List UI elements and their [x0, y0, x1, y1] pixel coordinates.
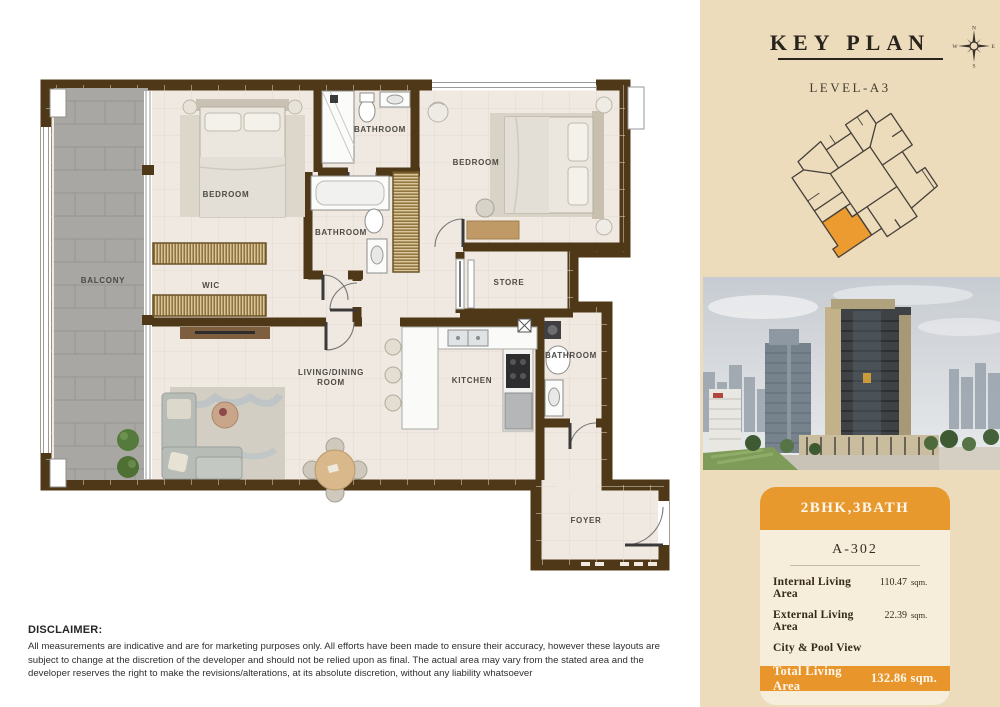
title-underline	[778, 58, 943, 60]
balcony-area	[41, 88, 148, 487]
compass-icon: N E S W	[952, 24, 996, 68]
external-area-row: External Living Area 22.39 sqm.	[760, 609, 950, 633]
room-label-foyer: FOYER	[570, 516, 601, 525]
view-row: City & Pool View	[760, 642, 950, 654]
disclaimer-body: All measurements are indicative and are …	[28, 640, 678, 681]
unit-type-badge: 2BHK,3BATH	[760, 487, 950, 530]
unit-number: A-302	[760, 542, 950, 558]
unit-card: 2BHK,3BATH A-302 Internal Living Area 11…	[760, 487, 950, 705]
total-value: 132.86 sqm.	[871, 671, 937, 686]
store-shelf	[468, 260, 474, 308]
building-photo	[703, 277, 1000, 470]
total-label: Total Living Area	[773, 664, 871, 694]
room-label-bathroom-2: BATHROOM	[315, 228, 367, 237]
page: BALCONYBEDROOMBATHROOMBEDROOMBATHROOMWIC…	[0, 0, 1000, 707]
disclaimer: DISCLAIMER: All measurements are indicat…	[28, 624, 678, 681]
svg-text:N: N	[972, 26, 976, 32]
svg-text:S: S	[972, 64, 975, 69]
key-plan-panel: KEY PLAN LEVEL-A3 N E S W	[700, 0, 1000, 707]
room-label-bathroom-3: BATHROOM	[545, 351, 597, 360]
total-area-bar: Total Living Area 132.86 sqm.	[760, 666, 950, 691]
level-label: LEVEL-A3	[700, 80, 1000, 96]
key-plan-diagram	[778, 100, 953, 268]
svg-text:W: W	[952, 44, 958, 50]
bed-icon	[180, 99, 305, 217]
sofa-icon	[162, 387, 285, 479]
room-label-bedroom-1: BEDROOM	[203, 190, 250, 199]
card-divider	[790, 565, 920, 566]
internal-area-row: Internal Living Area 110.47 sqm.	[760, 576, 950, 600]
room-label-wic: WIC	[202, 281, 220, 290]
unit-card-body: A-302 Internal Living Area 110.47 sqm. E…	[760, 530, 950, 705]
floor-plan: BALCONYBEDROOMBATHROOMBEDROOMBATHROOMWIC…	[30, 55, 680, 585]
room-label-balcony: BALCONY	[81, 276, 125, 285]
room-label-store: STORE	[494, 278, 525, 287]
foyer-passage	[557, 479, 595, 491]
highlighted-unit	[817, 203, 871, 257]
room-label-kitchen: KITCHEN	[452, 376, 492, 385]
room-label-bathroom-1: BATHROOM	[354, 125, 406, 134]
svg-text:E: E	[991, 44, 995, 50]
room-label-bedroom-2: BEDROOM	[453, 158, 500, 167]
disclaimer-heading: DISCLAIMER:	[28, 624, 678, 636]
